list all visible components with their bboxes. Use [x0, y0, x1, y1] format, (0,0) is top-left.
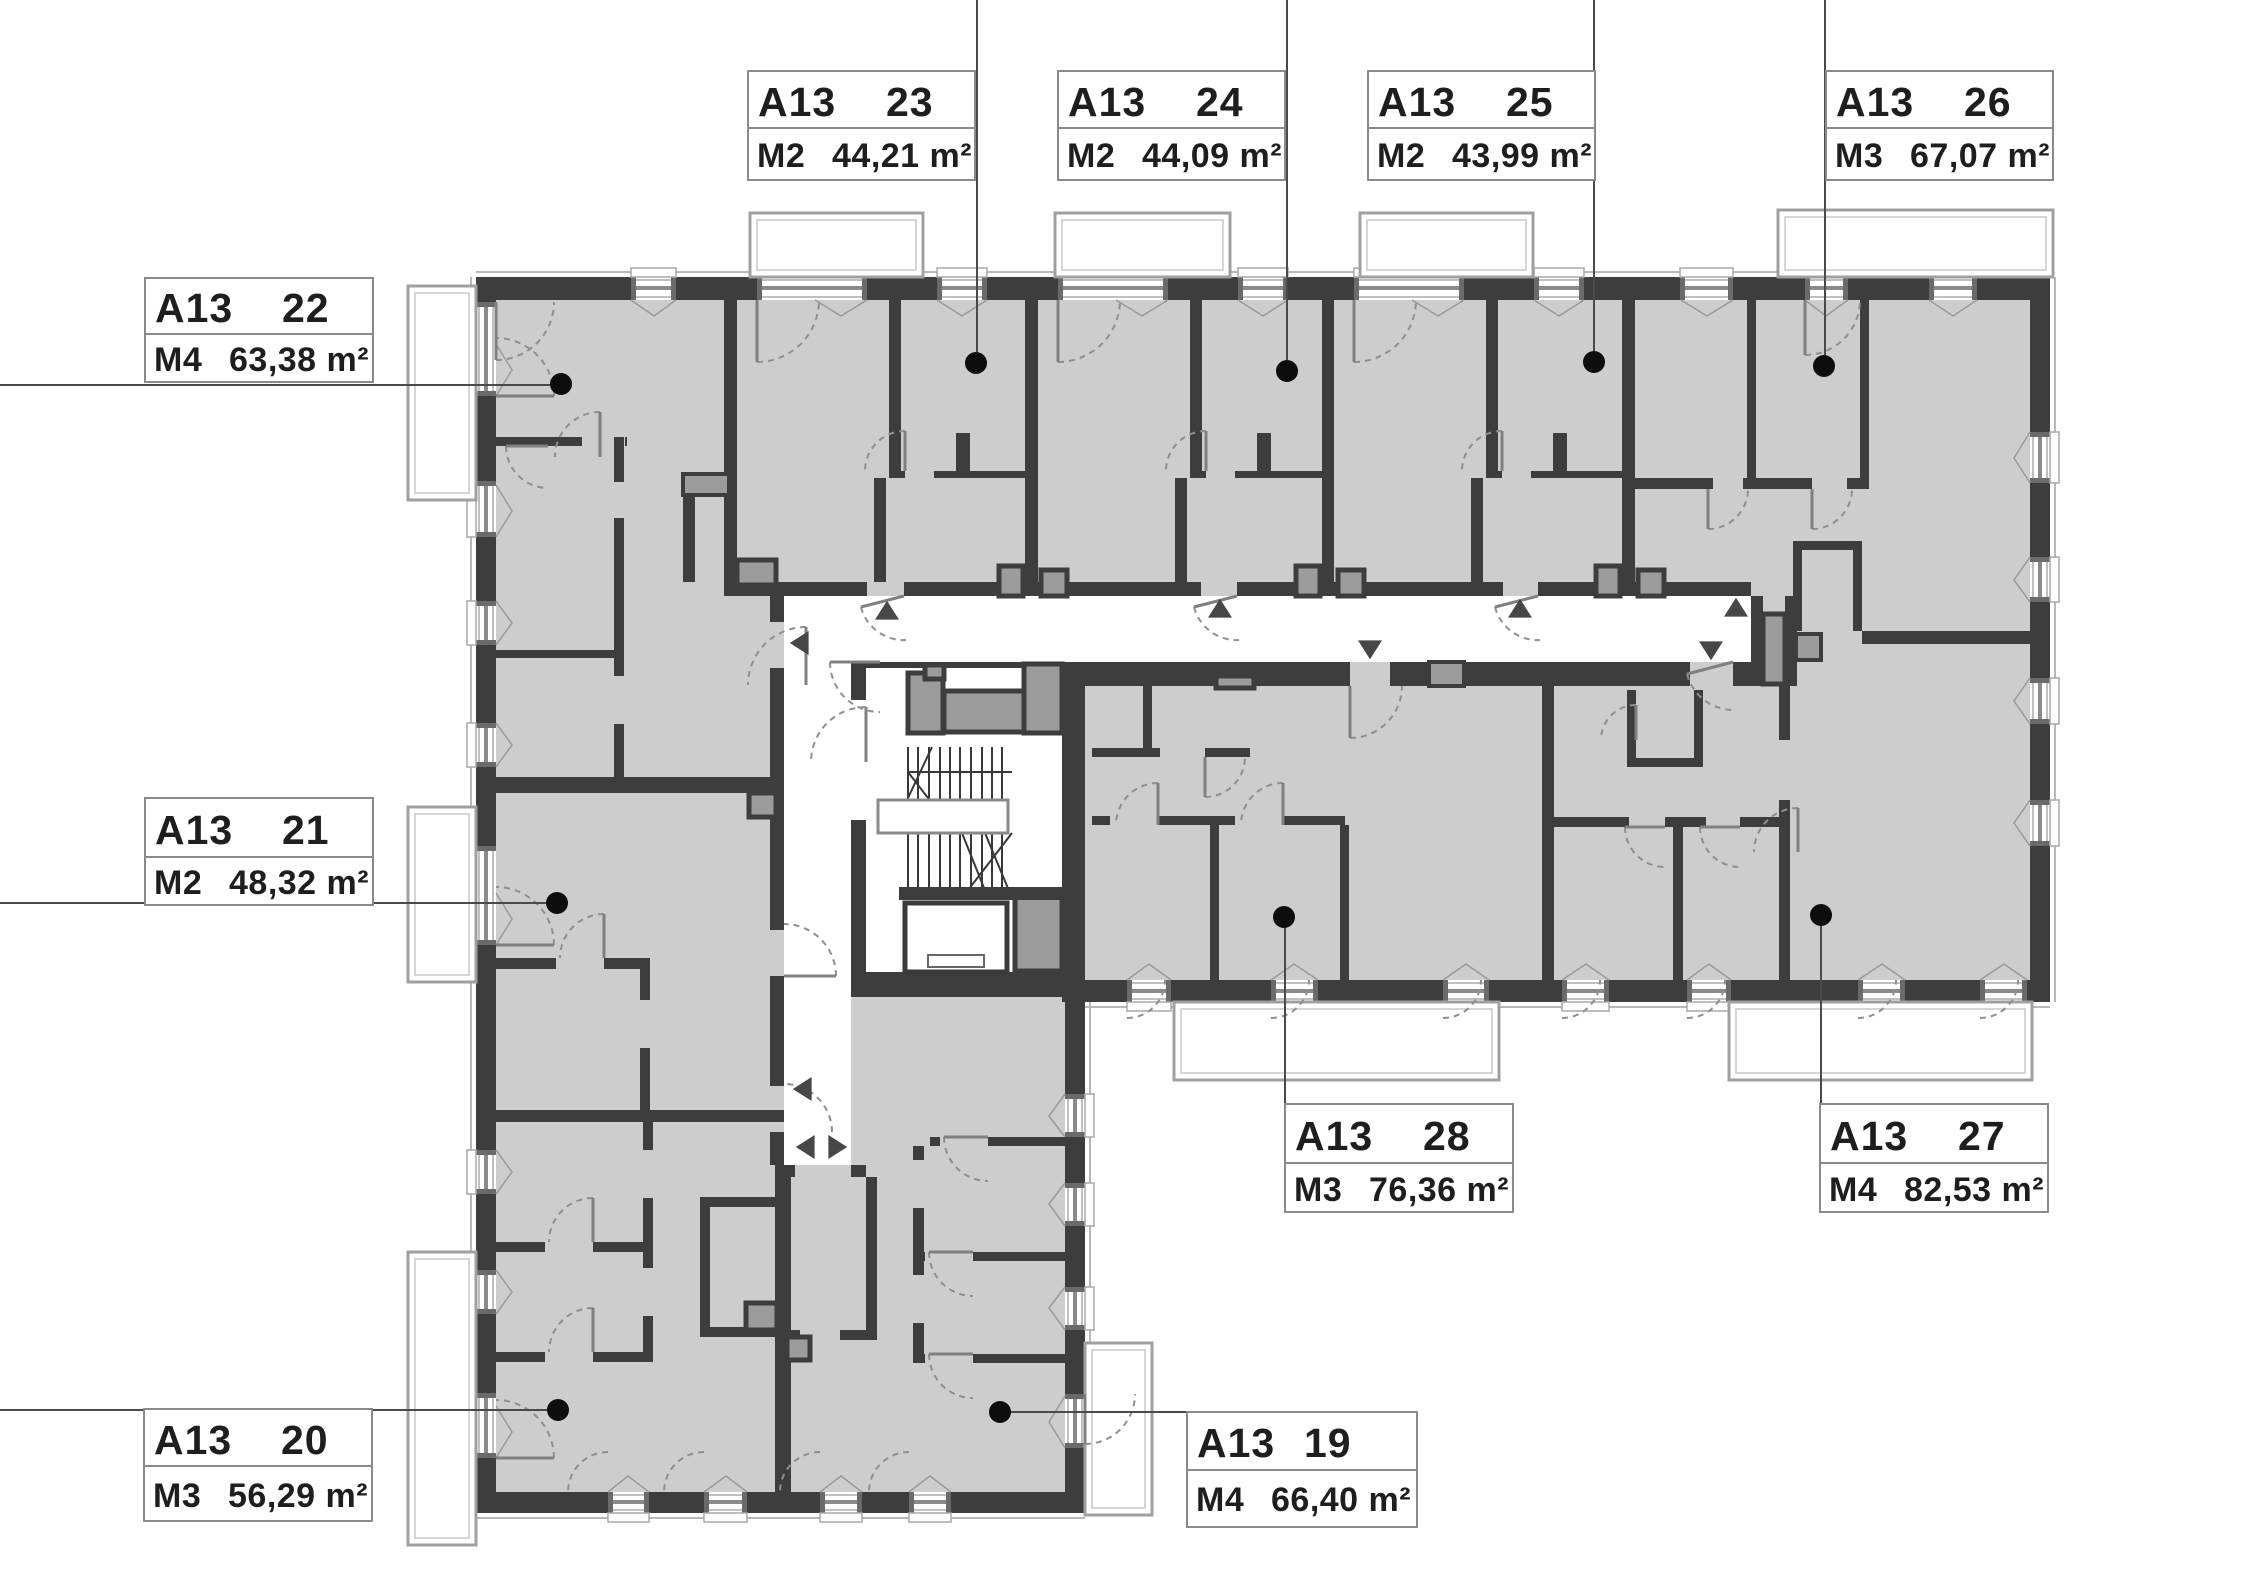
svg-text:23: 23	[886, 79, 934, 125]
svg-text:M2: M2	[1067, 137, 1115, 175]
svg-text:A13: A13	[155, 285, 233, 331]
svg-text:19: 19	[1304, 1420, 1352, 1466]
svg-text:M4: M4	[1196, 1481, 1244, 1519]
svg-text:A13: A13	[155, 807, 233, 853]
svg-text:M4: M4	[1829, 1171, 1877, 1209]
svg-text:82,53 m²: 82,53 m²	[1904, 1171, 2044, 1209]
svg-text:A13: A13	[1295, 1113, 1373, 1159]
svg-text:56,29 m²: 56,29 m²	[228, 1477, 368, 1515]
svg-text:A13: A13	[1830, 1113, 1908, 1159]
svg-text:43,99 m²: 43,99 m²	[1452, 137, 1592, 175]
svg-text:M3: M3	[1294, 1171, 1342, 1209]
svg-text:21: 21	[282, 807, 330, 853]
svg-text:M2: M2	[1377, 137, 1425, 175]
svg-text:44,09 m²: 44,09 m²	[1142, 137, 1282, 175]
svg-text:A13: A13	[1068, 79, 1146, 125]
svg-text:20: 20	[281, 1417, 329, 1463]
svg-text:67,07 m²: 67,07 m²	[1910, 137, 2050, 175]
svg-text:27: 27	[1958, 1113, 2006, 1159]
svg-text:M3: M3	[153, 1477, 201, 1515]
svg-text:A13: A13	[758, 79, 836, 125]
svg-text:44,21 m²: 44,21 m²	[832, 137, 972, 175]
svg-text:63,38 m²: 63,38 m²	[229, 341, 369, 379]
svg-text:A13: A13	[1378, 79, 1456, 125]
svg-text:28: 28	[1423, 1113, 1471, 1159]
svg-text:24: 24	[1196, 79, 1244, 125]
svg-text:26: 26	[1964, 79, 2012, 125]
svg-text:A13: A13	[1836, 79, 1914, 125]
svg-text:22: 22	[282, 285, 330, 331]
svg-text:48,32 m²: 48,32 m²	[229, 864, 369, 902]
svg-text:M4: M4	[154, 341, 202, 379]
svg-text:25: 25	[1506, 79, 1554, 125]
svg-text:A13: A13	[1197, 1420, 1275, 1466]
svg-text:66,40 m²: 66,40 m²	[1271, 1481, 1411, 1519]
svg-text:M3: M3	[1835, 137, 1883, 175]
svg-text:M2: M2	[757, 137, 805, 175]
svg-text:A13: A13	[154, 1417, 232, 1463]
svg-text:76,36 m²: 76,36 m²	[1369, 1171, 1509, 1209]
svg-text:M2: M2	[154, 864, 202, 902]
